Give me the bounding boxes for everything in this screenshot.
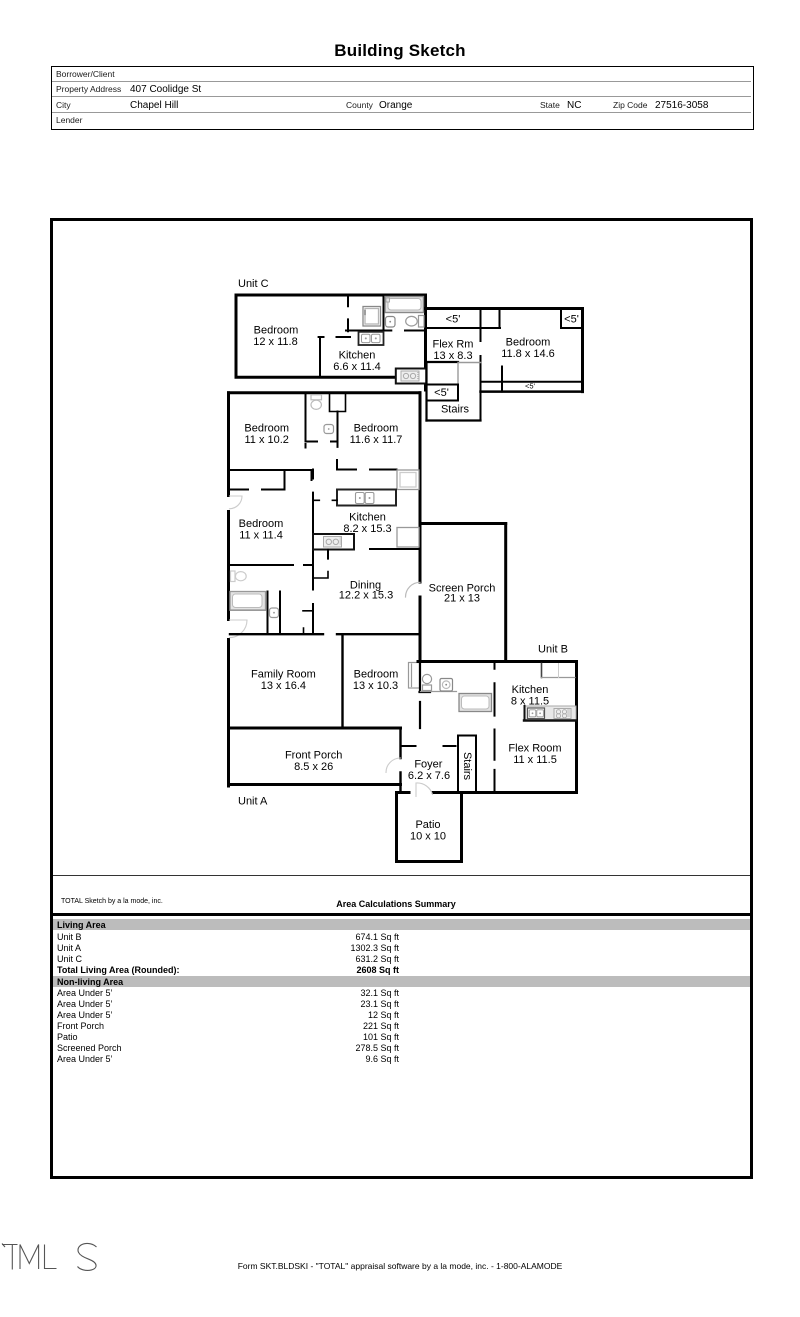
svg-text:Front Porch: Front Porch xyxy=(285,750,342,762)
svg-text:Bedroom: Bedroom xyxy=(354,669,399,681)
svg-text:Kitchen: Kitchen xyxy=(339,350,376,362)
svg-text:Flex Rm: Flex Rm xyxy=(433,339,474,351)
svg-text:11.6 x 11.7: 11.6 x 11.7 xyxy=(350,434,403,446)
svg-text:6.2 x 7.6: 6.2 x 7.6 xyxy=(408,770,450,782)
svg-text:8.5 x 26: 8.5 x 26 xyxy=(294,761,333,773)
svg-text:11 x 11.5: 11 x 11.5 xyxy=(513,754,557,766)
svg-text:21 x 13: 21 x 13 xyxy=(444,593,480,605)
svg-text:Unit B: Unit B xyxy=(538,644,568,656)
svg-text:13 x 16.4: 13 x 16.4 xyxy=(261,680,306,692)
svg-text:Unit A: Unit A xyxy=(238,796,268,808)
svg-text:10 x 10: 10 x 10 xyxy=(410,831,446,843)
svg-text:12.2 x 15.3: 12.2 x 15.3 xyxy=(339,590,393,602)
svg-text:11 x 10.2: 11 x 10.2 xyxy=(244,434,288,446)
svg-text:13 x 8.3: 13 x 8.3 xyxy=(433,350,472,362)
svg-text:Bedroom: Bedroom xyxy=(244,423,289,435)
svg-text:6.6 x 11.4: 6.6 x 11.4 xyxy=(333,361,381,373)
svg-text:Bedroom: Bedroom xyxy=(354,423,399,435)
svg-text:Bedroom: Bedroom xyxy=(506,337,551,349)
svg-text:<5': <5' xyxy=(525,382,536,391)
svg-text:13 x 10.3: 13 x 10.3 xyxy=(353,680,398,692)
svg-text:11 x 11.4: 11 x 11.4 xyxy=(239,530,283,542)
svg-text:Stairs: Stairs xyxy=(441,404,470,416)
svg-text:Stairs: Stairs xyxy=(461,752,473,781)
svg-text:<5': <5' xyxy=(446,314,461,326)
svg-text:Patio: Patio xyxy=(415,819,440,831)
svg-text:Family Room: Family Room xyxy=(251,669,316,681)
svg-text:Kitchen: Kitchen xyxy=(349,512,386,524)
svg-text:Flex Room: Flex Room xyxy=(508,743,561,755)
svg-text:Bedroom: Bedroom xyxy=(254,325,299,337)
svg-text:Foyer: Foyer xyxy=(414,759,442,771)
svg-text:<5': <5' xyxy=(564,314,579,326)
svg-text:11.8 x 14.6: 11.8 x 14.6 xyxy=(501,348,555,360)
svg-text:Unit C: Unit C xyxy=(238,278,269,290)
svg-text:Kitchen: Kitchen xyxy=(512,684,549,696)
svg-text:12 x 11.8: 12 x 11.8 xyxy=(253,336,297,348)
svg-text:<5': <5' xyxy=(434,387,449,399)
svg-text:Bedroom: Bedroom xyxy=(239,518,284,530)
